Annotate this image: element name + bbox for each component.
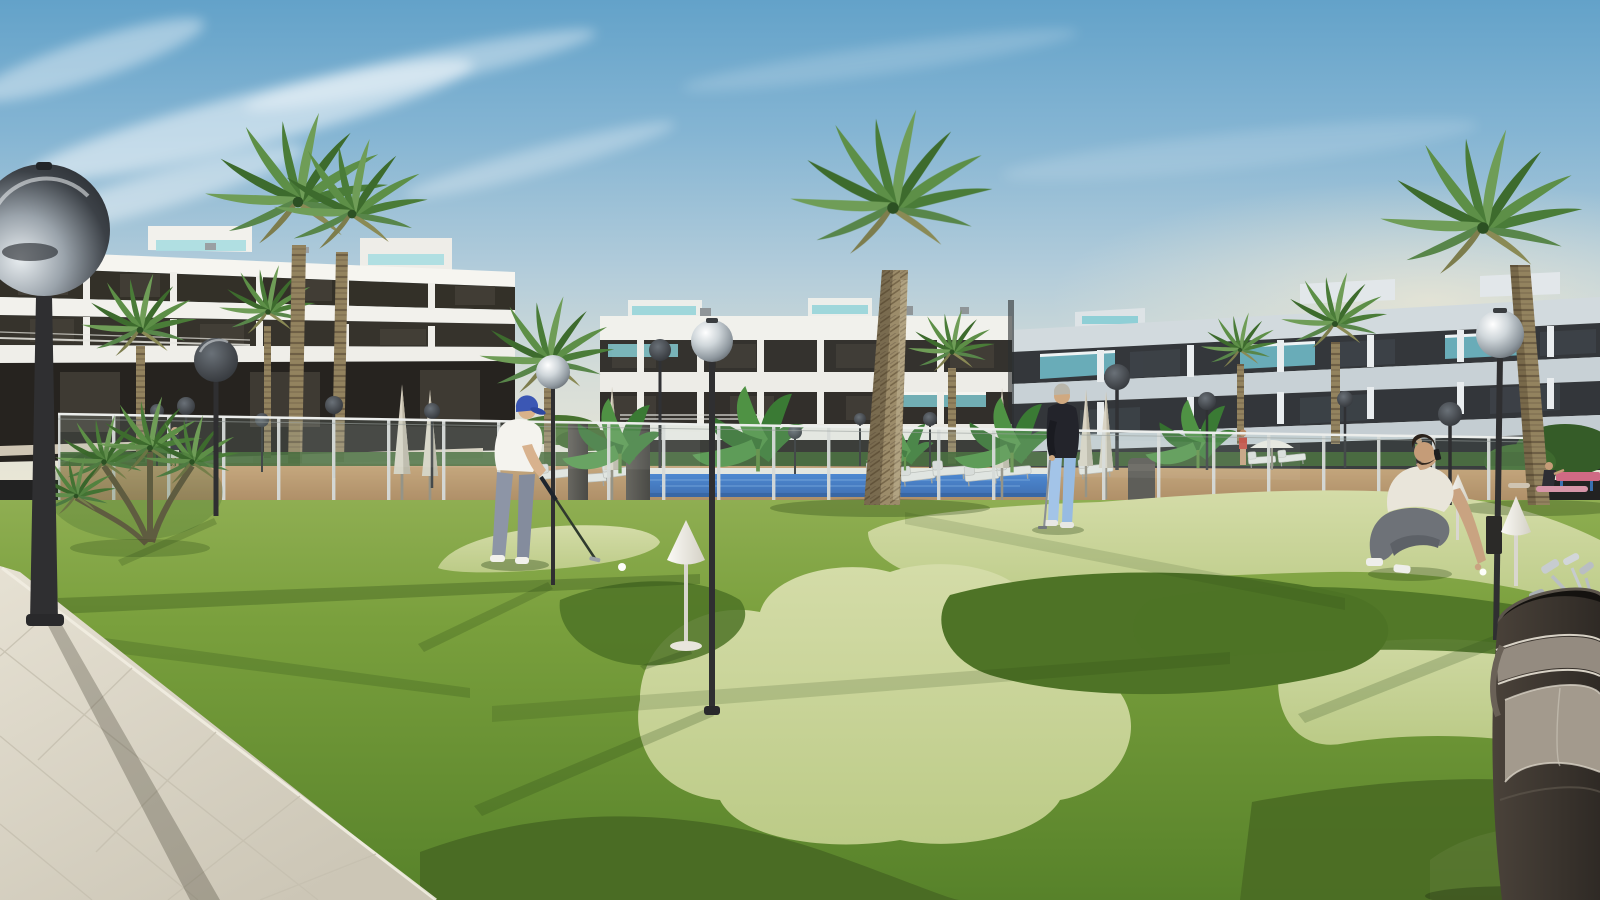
architectural-render	[0, 0, 1600, 900]
golf-ball	[618, 563, 626, 571]
golf-ball-2	[1480, 569, 1487, 576]
